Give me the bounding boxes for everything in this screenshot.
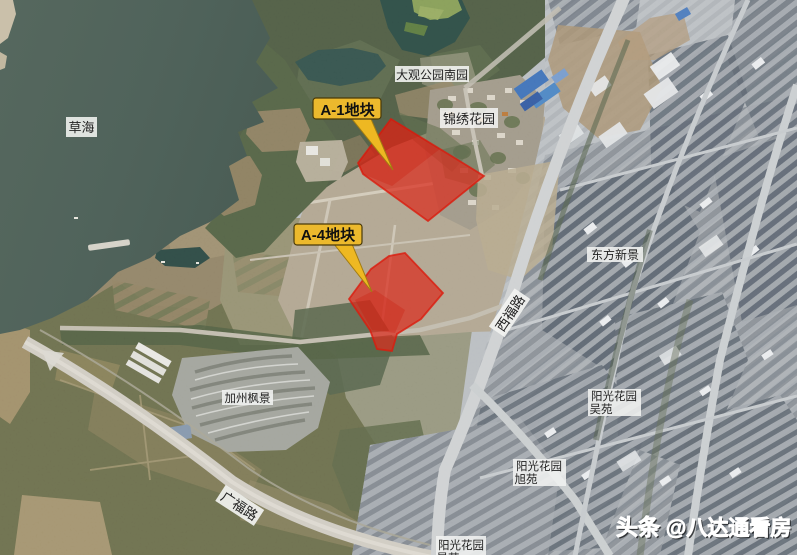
- svg-text:加州枫景: 加州枫景: [225, 391, 271, 405]
- svg-text:锦绣花园: 锦绣花园: [443, 112, 495, 127]
- svg-text:草海: 草海: [68, 120, 94, 135]
- svg-text:吴苑: 吴苑: [590, 403, 613, 416]
- svg-text:阳光花园: 阳光花园: [591, 389, 637, 403]
- svg-text:大观公园南园: 大观公园南园: [396, 67, 468, 82]
- svg-text:A-1地块: A-1地块: [320, 101, 375, 119]
- svg-text:A-4地块: A-4地块: [301, 226, 356, 244]
- svg-text:阳光花园: 阳光花园: [438, 538, 484, 552]
- svg-text:旭苑: 旭苑: [515, 473, 538, 486]
- svg-text:阳光花园: 阳光花园: [516, 459, 562, 473]
- svg-text:头条 @八达通看房: 头条 @八达通看房: [616, 515, 791, 540]
- svg-text:东方新景: 东方新景: [591, 247, 639, 262]
